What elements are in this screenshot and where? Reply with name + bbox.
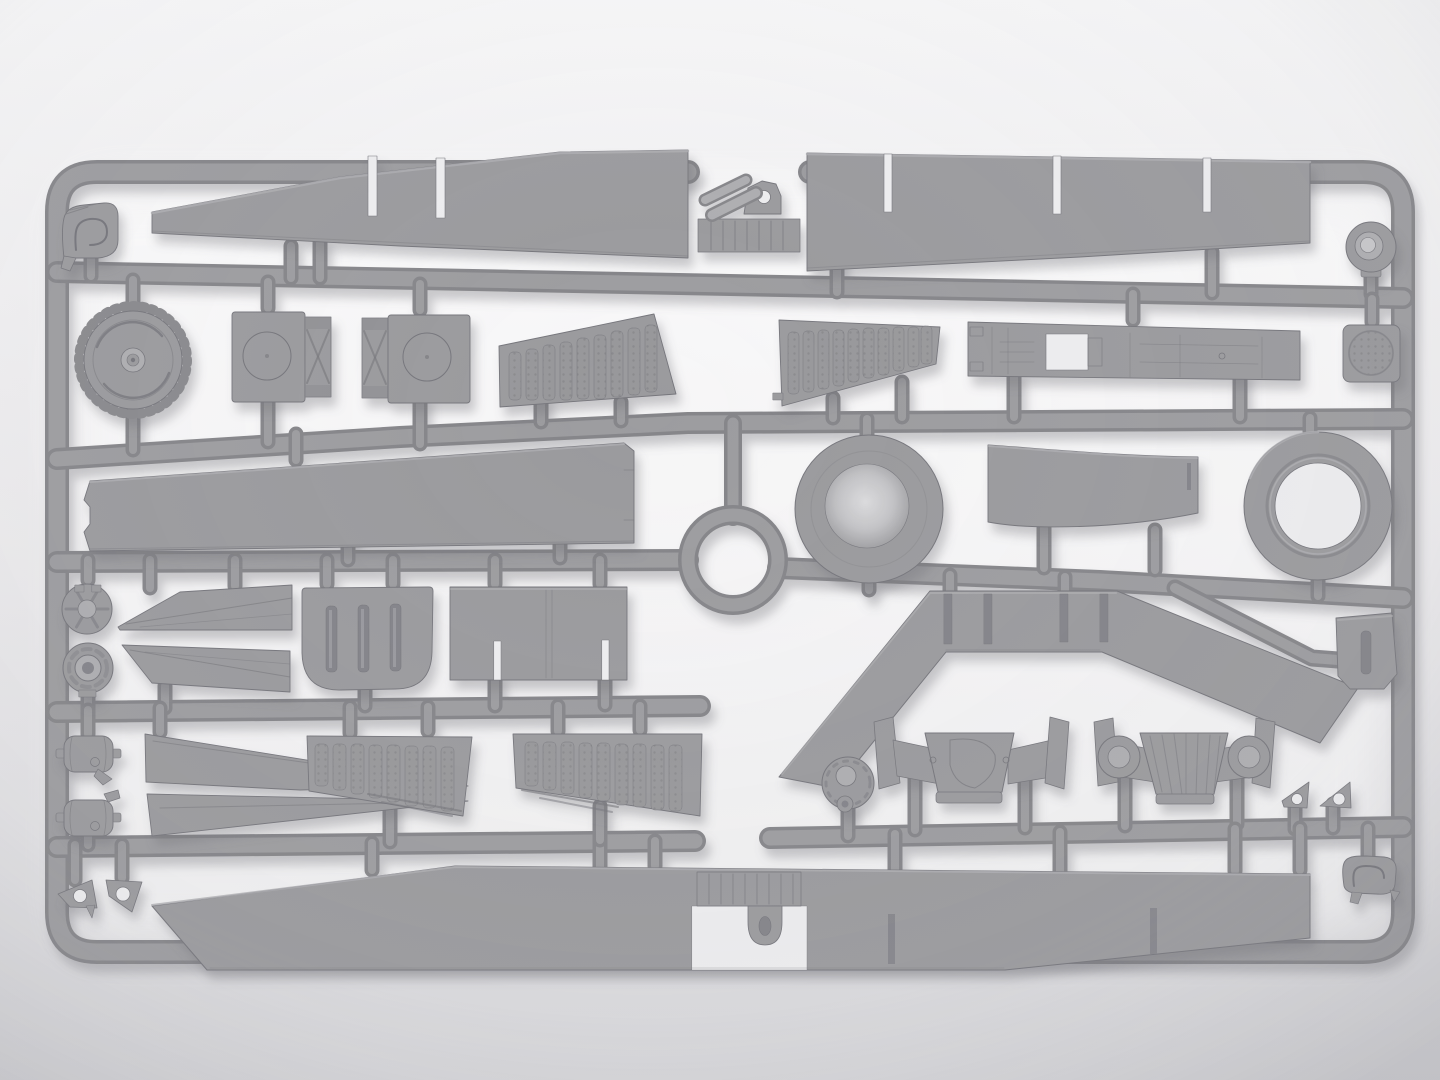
model-kit-sprue-photo (0, 0, 1440, 1080)
sprue-render-canvas (0, 0, 1440, 1080)
vignette-overlay (0, 0, 1440, 1080)
